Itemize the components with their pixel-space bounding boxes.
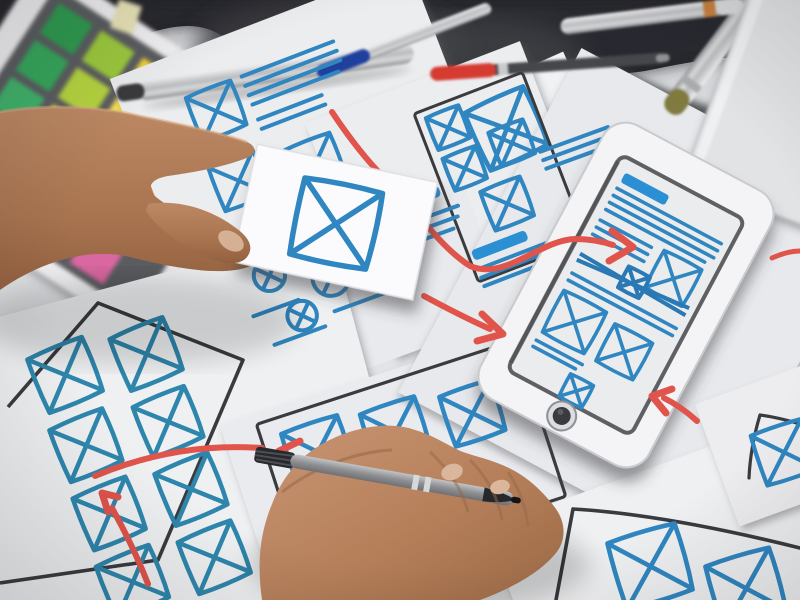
- vignette: [0, 0, 800, 600]
- photo-desk-scene: [0, 0, 800, 600]
- scene-canvas: [0, 0, 800, 600]
